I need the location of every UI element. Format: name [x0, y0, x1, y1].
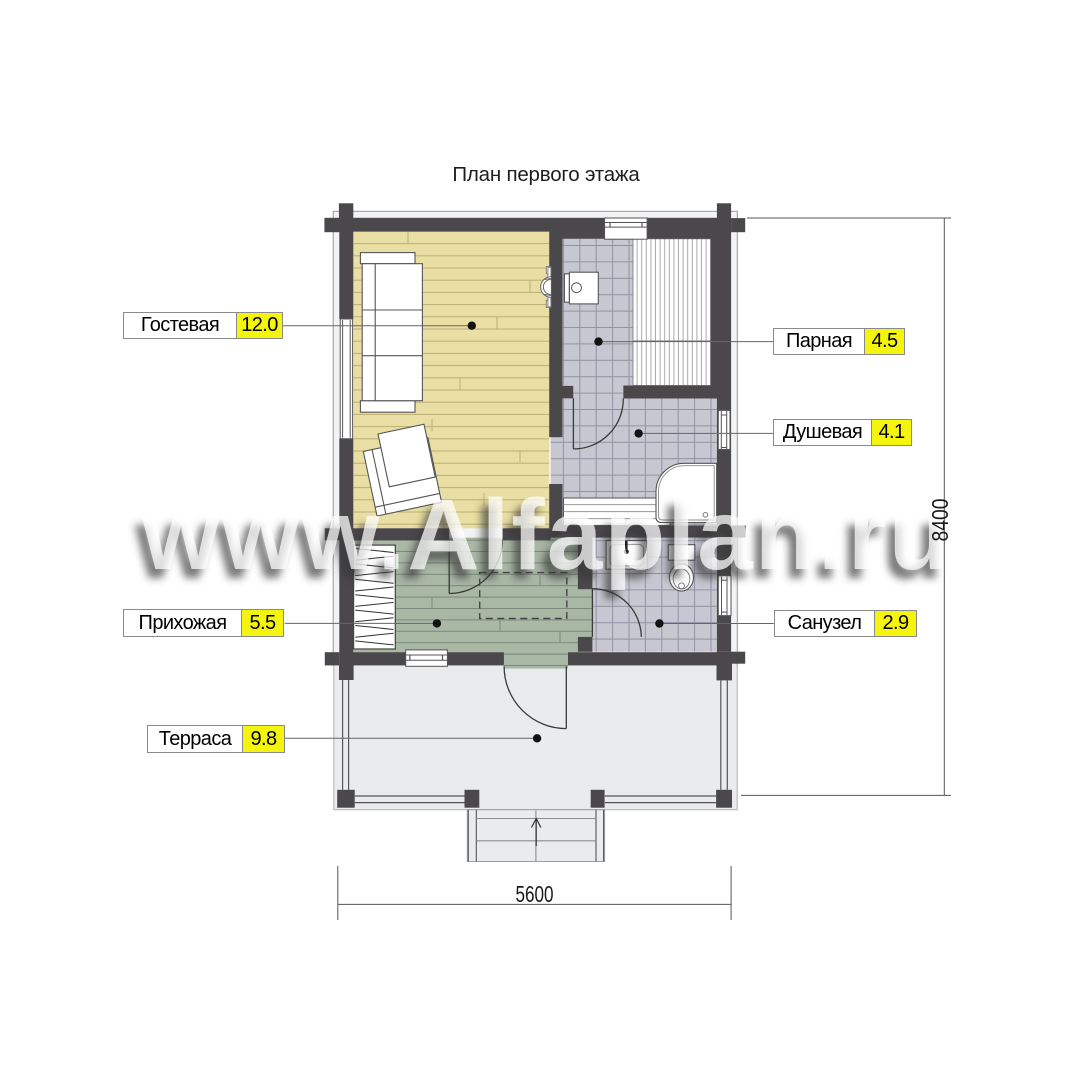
svg-text:8400: 8400 — [927, 499, 953, 542]
svg-text:5600: 5600 — [516, 881, 554, 907]
